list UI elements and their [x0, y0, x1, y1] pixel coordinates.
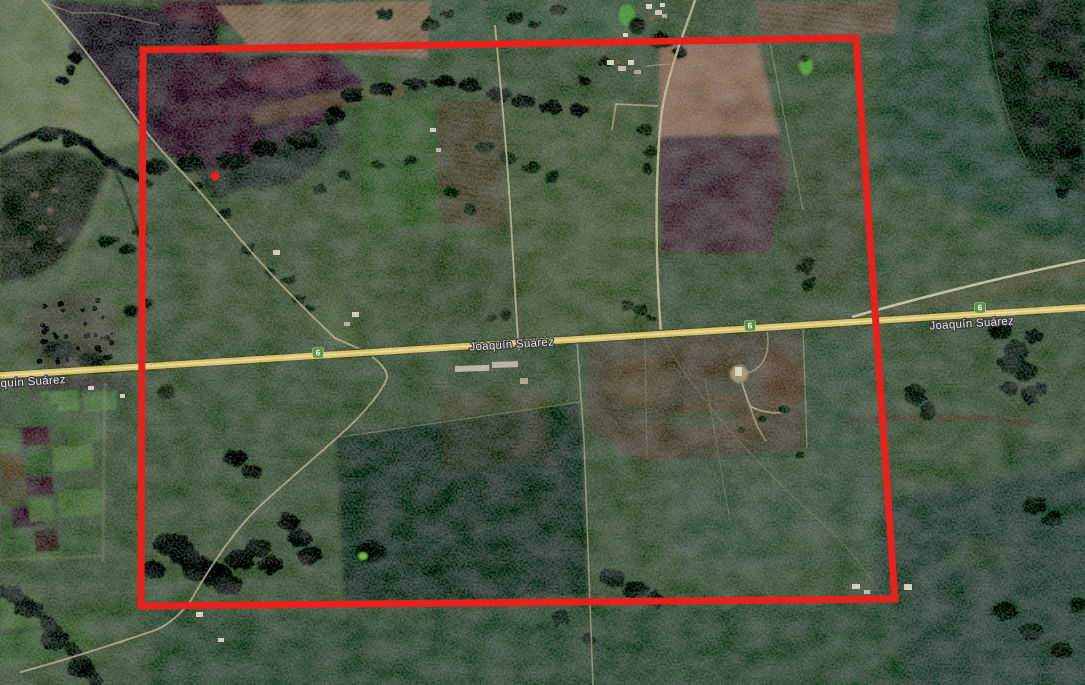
svg-text:6: 6 — [316, 349, 321, 358]
svg-text:6: 6 — [748, 322, 753, 331]
svg-text:6: 6 — [978, 304, 983, 313]
